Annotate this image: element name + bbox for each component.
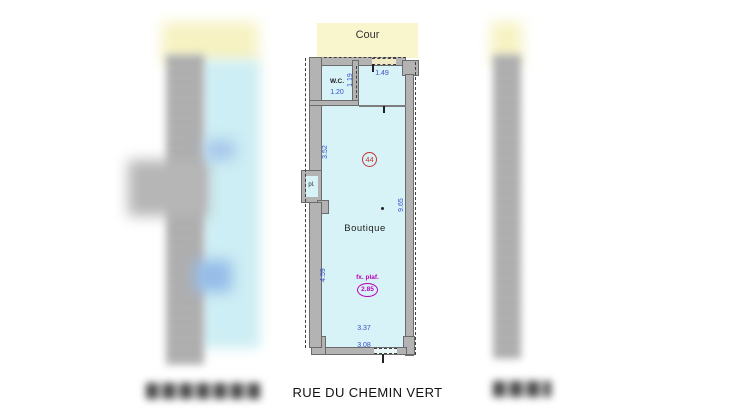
wall-wc-bottom (309, 100, 359, 106)
dim-rear-width: 3.37 (350, 324, 378, 334)
interior-door-leaf (383, 106, 385, 113)
dim-wc-depth: 1.19 (346, 66, 356, 94)
property-line-right (415, 62, 416, 355)
property-line-left (305, 58, 306, 348)
street-label: RUE DU CHEMIN VERT (265, 386, 470, 400)
courtyard-door-opening (372, 58, 396, 65)
street-door-leaf (382, 354, 384, 363)
left-blur-detail-1 (205, 140, 235, 160)
dim-right-depth: 9.65 (397, 191, 407, 219)
right-blur-wall (493, 54, 521, 359)
right-blur-street-text (493, 381, 551, 397)
left-blur-interior (200, 60, 260, 348)
floor-plan-page: Cour W.C. 1.20 1.19 1.49 44 3.52 pl. 9.6… (0, 0, 750, 420)
dim-left-lower: 4.59 (319, 261, 329, 289)
courtyard-label: Cour (317, 29, 418, 41)
left-blur-wall-arm (128, 160, 208, 216)
boutique-label: Boutique (334, 224, 396, 234)
left-blur-detail-2 (194, 260, 232, 292)
ceiling-height-value: 2.85 (357, 283, 378, 297)
post-marker (381, 207, 384, 210)
dim-left-upper: 3.52 (321, 138, 331, 166)
left-blur-street-text (146, 383, 260, 399)
closet-label: pl. (303, 182, 320, 189)
lot-number-badge: 44 (362, 152, 377, 167)
wc-door-dash (356, 66, 357, 98)
dim-courtyard-door: 1.49 (368, 69, 396, 79)
dim-front-width: 3.08 (350, 341, 378, 351)
ceiling-note-label: fx. plaf. (351, 273, 384, 282)
